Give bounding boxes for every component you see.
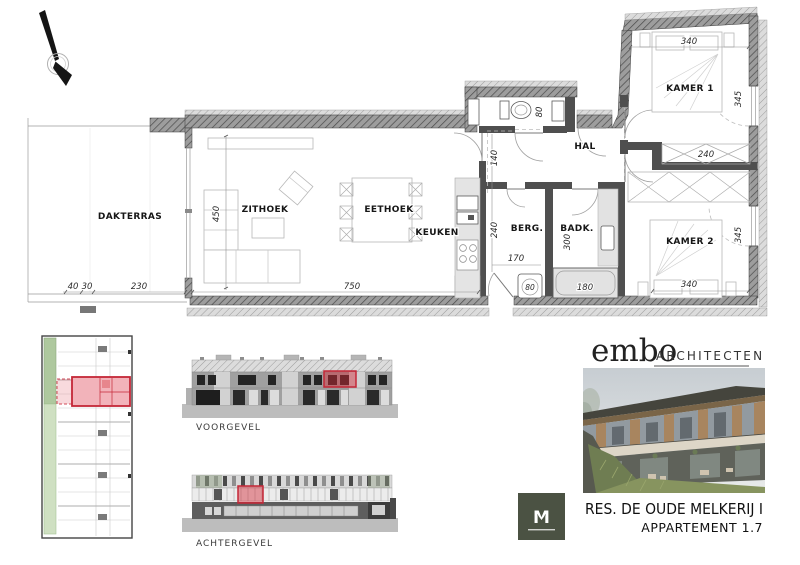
dim-k2-340: 340 xyxy=(681,280,697,290)
room-label-keuken: KEUKEN xyxy=(415,228,458,238)
firm-suffix: ARCHITECTEN xyxy=(656,349,764,363)
floor-plan: DAKTERRAS ZITHOEK EETHOEK KEUKEN HAL BER… xyxy=(28,7,767,316)
green-strip-light xyxy=(44,404,56,534)
room-label-badk: BADK. xyxy=(560,224,593,234)
firm-wordmark: embo ARCHITECTEN xyxy=(591,333,764,369)
title-block: RES. DE OUDE MELKERIJ I APPARTEMENT 1.7 xyxy=(585,500,763,535)
elevation-front: VOORGEVEL xyxy=(182,355,398,433)
room-label-hal: HAL xyxy=(574,142,595,152)
firm-logo: M xyxy=(518,493,565,540)
dim-wc-80: 80 xyxy=(535,107,545,118)
room-label-zithoek: ZITHOEK xyxy=(242,205,289,215)
apartment-label: APPARTEMENT 1.7 xyxy=(641,520,763,535)
dim-bath-180: 180 xyxy=(577,283,593,293)
dim-k2-345: 345 xyxy=(734,227,744,243)
dim-k1-340: 340 xyxy=(681,37,697,47)
dim-terras-30: 30 xyxy=(82,282,93,292)
dim-entry-80: 80 xyxy=(525,283,535,292)
toilet-tank xyxy=(500,101,509,119)
room-label-eethoek: EETHOEK xyxy=(364,205,414,215)
elevation-front-highlight xyxy=(324,371,356,387)
dim-dressing-240: 240 xyxy=(698,150,714,160)
dim-living-450: 450 xyxy=(212,206,222,222)
key-plan xyxy=(42,336,132,538)
room-label-dakterras: DAKTERRAS xyxy=(98,212,162,222)
room-label-kamer1: KAMER 1 xyxy=(666,84,714,94)
dim-living-750: 750 xyxy=(344,282,360,292)
key-plan-highlight-terrace xyxy=(57,379,72,404)
drawing-sheet: DAKTERRAS ZITHOEK EETHOEK KEUKEN HAL BER… xyxy=(0,0,800,565)
kitchen-counter xyxy=(455,178,480,298)
elevation-rear: ACHTERGEVEL xyxy=(182,475,398,549)
green-strip-dark xyxy=(44,338,56,404)
elevation-front-label: VOORGEVEL xyxy=(196,423,261,433)
dim-berg-240: 240 xyxy=(490,222,500,238)
elevation-rear-label: ACHTERGEVEL xyxy=(196,539,273,549)
toilet-icon xyxy=(511,102,531,119)
washbasin-badk xyxy=(601,226,614,250)
dim-terras-40: 40 xyxy=(68,282,79,292)
washbasin-wc xyxy=(552,101,564,121)
key-plan-highlight-unit xyxy=(72,377,130,406)
dim-k1-345: 345 xyxy=(734,91,744,107)
project-photo xyxy=(576,368,765,493)
dim-hal-140: 140 xyxy=(490,150,500,166)
dimension-lines xyxy=(63,45,750,294)
dim-badk-300: 300 xyxy=(563,234,573,250)
project-title: RES. DE OUDE MELKERIJ I xyxy=(585,500,763,518)
room-label-kamer2: KAMER 2 xyxy=(666,237,714,247)
elevation-rear-highlight xyxy=(238,486,263,503)
north-arrow-icon xyxy=(39,10,72,86)
dim-terras-230: 230 xyxy=(131,282,147,292)
dim-berg-170: 170 xyxy=(508,254,524,264)
duct xyxy=(468,99,479,125)
room-label-berg: BERG. xyxy=(511,224,544,234)
